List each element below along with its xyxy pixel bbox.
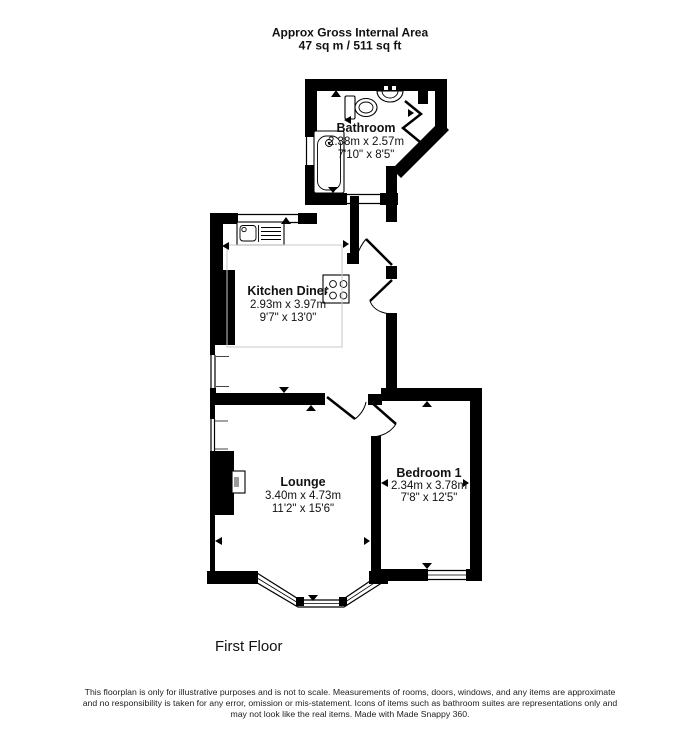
arrow-bedroom-up	[422, 401, 432, 407]
lounge-left-window	[211, 419, 228, 451]
basin-tap	[392, 86, 396, 90]
arrow-bathroom-up	[331, 90, 341, 97]
bathroom-metric: 2.38m x 2.57m	[328, 136, 404, 148]
wall-lounge-chimney-breast	[210, 451, 234, 515]
kitchen-diner-label: Kitchen Diner	[247, 284, 328, 298]
wall-bathroom-top	[305, 79, 447, 91]
kitchen-diner-imperial: 9'7" x 13'0"	[260, 312, 317, 324]
wall-kitchen-top-a	[210, 213, 238, 224]
arrow-kitchen-down	[279, 387, 289, 393]
wall-landing-right-b	[386, 313, 397, 401]
disclaimer: This floorplan is only for illustrative …	[83, 687, 618, 719]
disclaimer-line3: may not look like the real items. Made w…	[230, 709, 469, 719]
disclaimer-line1: This floorplan is only for illustrative …	[85, 687, 616, 697]
landing-door-lower	[370, 280, 392, 314]
room-labels: Bathroom 2.38m x 2.57m 7'10" x 8'5" Kitc…	[247, 121, 467, 515]
wall-bathroom-right-upper	[435, 79, 447, 129]
windows	[211, 137, 466, 607]
wall-kitchen-right	[350, 196, 359, 254]
arrow-kitchen-left	[222, 242, 229, 250]
page-title-line2: 47 sq m / 511 sq ft	[299, 39, 402, 53]
wall-kitchen-chimney-breast	[210, 270, 235, 345]
wall-lounge-top-a	[210, 393, 325, 405]
bedroom-bottom-window	[428, 571, 466, 580]
basin-tap	[384, 86, 388, 90]
wall-bathroom-bottom-a	[305, 193, 347, 205]
arrow-lounge-left	[215, 537, 222, 545]
bathroom-label: Bathroom	[336, 121, 395, 135]
toilet-icon	[345, 96, 377, 119]
bedroom-door	[371, 402, 396, 437]
bay-window	[254, 571, 388, 607]
lounge-door	[327, 397, 366, 419]
wall-lounge-bottom-left	[207, 571, 258, 584]
disclaimer-line2: and no responsibility is taken for any e…	[83, 698, 618, 708]
arrow-kitchen-right	[343, 240, 349, 248]
landing-door-upper	[356, 239, 392, 265]
lounge-imperial: 11'2" x 15'6"	[272, 503, 334, 515]
arrow-bathroom-door-right	[408, 109, 414, 117]
wall-bedroom-top	[381, 388, 482, 401]
arrow-kitchen-up	[281, 217, 291, 224]
kitchen-diner-metric: 2.93m x 3.97m	[250, 299, 326, 311]
arrow-lounge-right	[364, 537, 370, 545]
wall-bedroom-left	[371, 436, 381, 571]
arrow-lounge-up	[306, 405, 316, 411]
wall-kitchen-top-b	[298, 213, 317, 224]
lounge-metric: 3.40m x 4.73m	[265, 490, 341, 502]
wall-bathroom-left-upper	[305, 79, 317, 137]
arrow-bedroom-left	[381, 479, 388, 487]
wall-bathroom-door-stub	[418, 91, 428, 104]
wall-landing-door-post	[386, 266, 397, 279]
bedroom-metric: 2.34m x 3.78m	[391, 480, 467, 492]
wall-lounge-left-thin-b	[210, 515, 215, 571]
bathroom-imperial: 7'10" x 8'5"	[338, 149, 395, 161]
wall-bedroom-bottom-b	[466, 569, 482, 581]
bedroom-imperial: 7'8" x 12'5"	[401, 492, 458, 504]
bedroom-label: Bedroom 1	[396, 466, 461, 480]
floorplan-page: Approx Gross Internal Area 47 sq m / 511…	[0, 0, 700, 729]
arrow-bedroom-down	[422, 563, 432, 569]
kitchen-left-window	[211, 355, 229, 388]
wall-lounge-left-thin-a	[210, 405, 215, 419]
fireplace-icon	[232, 471, 245, 493]
bathroom-door-zigzag	[403, 101, 421, 142]
wall-kitchen-left-upper	[210, 224, 223, 270]
wall-diagonal-stairwell	[392, 121, 449, 178]
floor-label: First Floor	[215, 638, 283, 655]
wall-lounge-top-b	[368, 394, 382, 405]
wall-landing-right-a	[386, 166, 397, 222]
wall-bedroom-right	[470, 388, 482, 581]
floorplan-drawing: Approx Gross Internal Area 47 sq m / 511…	[0, 0, 700, 729]
lounge-label: Lounge	[280, 475, 325, 489]
kitchen-sink-icon	[237, 222, 284, 245]
page-title-line1: Approx Gross Internal Area	[272, 26, 429, 40]
wall-kitchen-left-thin-a	[210, 345, 215, 355]
